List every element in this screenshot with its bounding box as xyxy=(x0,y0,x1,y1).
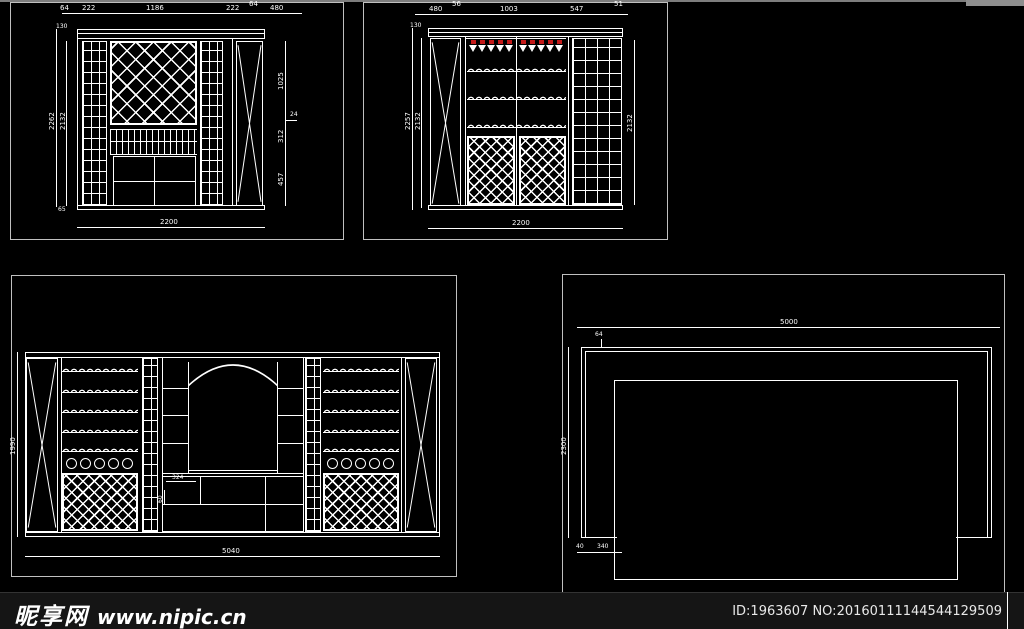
d1-bottom-dim-line xyxy=(77,227,265,228)
d4-wall-inner-left xyxy=(585,351,586,538)
d1-right-dim-leader xyxy=(285,120,297,121)
wine-glass-icon xyxy=(546,40,555,56)
wine-bottle-end-icon xyxy=(108,458,119,469)
d2-glass-rail xyxy=(466,38,566,39)
d1-bottle-slot-band xyxy=(110,129,197,155)
wine-glass-icon xyxy=(537,40,546,56)
d3-bottle-shelf xyxy=(323,366,399,372)
d2-crown-rail-inner-line xyxy=(429,32,622,33)
d1-left-stile xyxy=(77,39,78,206)
d2-bottle-shelf xyxy=(467,122,566,128)
d2-top-dim-line xyxy=(415,14,628,15)
d4-dim: 340 xyxy=(597,544,608,550)
d1-left-bottle-rack xyxy=(82,41,107,206)
d2-dim: 547 xyxy=(570,6,583,13)
d3-dim: 5040 xyxy=(222,548,240,555)
d4-left-dim-line xyxy=(568,347,569,538)
d1-cabinet-divider-v xyxy=(154,157,155,205)
d3-dim: 1990 xyxy=(10,437,17,455)
d2-dim: 2200 xyxy=(512,220,530,227)
d2-dim: 480 xyxy=(429,6,442,13)
d3-counter-line xyxy=(162,473,304,474)
arch-icon xyxy=(188,356,278,388)
window-top-corner xyxy=(966,0,1024,6)
d1-left-dim-line-outer xyxy=(56,29,57,207)
d2-mid-right-stile xyxy=(568,37,569,208)
d3-slot-column-left xyxy=(142,358,158,532)
d3-base-line-lower xyxy=(25,536,440,537)
d1-dim: 65 xyxy=(58,207,66,213)
d1-dim: 2200 xyxy=(160,219,178,226)
site-brand: 昵享网www.nipic.cn xyxy=(14,597,247,629)
d4-top-dim-line xyxy=(577,327,1000,328)
d2-right-bottle-rack xyxy=(572,38,622,205)
d3-niche-sill xyxy=(188,470,278,471)
d2-bottom-dim-line xyxy=(428,228,623,229)
d4-wall-step-right xyxy=(956,537,992,538)
d1-x-side-panel xyxy=(236,41,263,206)
d1-dim: 130 xyxy=(56,24,67,30)
d1-dim: 1186 xyxy=(146,5,164,12)
wine-bottle-end-icon xyxy=(369,458,380,469)
d3-bottle-shelf xyxy=(62,446,138,452)
d1-dim: 1025 xyxy=(278,72,285,90)
d3-bottle-shelf xyxy=(323,427,399,433)
d1-slot-band-mid-line xyxy=(110,141,197,142)
d1-right-dim-line xyxy=(285,41,286,206)
d4-bottom-dim-line xyxy=(577,552,622,553)
d4-dim: 2300 xyxy=(561,437,568,455)
d3-right-column-shelf xyxy=(278,415,303,416)
d4-wall-inner-top xyxy=(585,351,988,352)
wine-glass-icon xyxy=(487,40,496,56)
d1-right-stile xyxy=(232,39,233,206)
wine-bottle-end-icon xyxy=(66,458,77,469)
d1-dim: 222 xyxy=(82,5,95,12)
d1-crown-rail xyxy=(77,29,265,39)
d3-cabinet-divider-v2 xyxy=(265,477,266,504)
d2-bottle-shelf xyxy=(467,66,566,72)
d3-counter-dim-line xyxy=(166,481,196,482)
d2-dim: 2132 xyxy=(415,112,422,130)
wine-glass-icon xyxy=(528,40,537,56)
d2-dim: 56 xyxy=(452,1,461,8)
wine-bottle-end-icon xyxy=(341,458,352,469)
wine-bottle-end-icon xyxy=(94,458,105,469)
d3-cabinet-divider-v3 xyxy=(265,505,266,532)
d2-base-plinth xyxy=(428,205,623,210)
d1-dim: 312 xyxy=(278,130,285,143)
d3-bottle-shelf xyxy=(62,387,138,393)
d2-diamond-lattice-right xyxy=(519,136,566,205)
d1-top-dim-line xyxy=(62,13,302,14)
d4-wall-outer-left xyxy=(581,347,582,538)
d3-dim: 60 xyxy=(158,495,164,503)
d3-base-line-upper xyxy=(25,532,440,533)
d2-left-dim-line-outer xyxy=(412,28,413,210)
d2-dim: 2257 xyxy=(405,112,412,130)
wine-bottle-end-icon xyxy=(383,458,394,469)
d1-dim: 64 xyxy=(249,1,258,8)
d1-diamond-lattice-panel xyxy=(110,41,197,125)
d3-slot-column-right xyxy=(305,358,321,532)
d3-x-panel-left xyxy=(26,358,58,532)
d3-dim: 324 xyxy=(172,475,183,481)
d1-right-bottle-rack xyxy=(200,41,223,206)
d4-wall-inner-right xyxy=(987,351,988,538)
d3-left-column-shelf xyxy=(163,388,188,389)
x-brace-icon xyxy=(27,359,57,531)
wine-glass-icon xyxy=(505,40,514,56)
d1-dim: 457 xyxy=(278,173,285,186)
d3-bottle-shelf xyxy=(62,366,138,372)
d4-wall-step-left xyxy=(581,537,617,538)
d3-bottom-dim-line xyxy=(25,556,440,557)
footer-divider-line xyxy=(1007,592,1008,629)
d3-x-panel-right xyxy=(405,358,437,532)
d3-counter-dim-line-v xyxy=(164,490,165,505)
d3-left-column-shelf xyxy=(163,415,188,416)
wine-bottle-end-icon xyxy=(327,458,338,469)
d2-x-side-panel xyxy=(430,38,461,208)
d2-dim: 2132 xyxy=(627,114,634,132)
wine-glass-icon xyxy=(478,40,487,56)
d3-left-column-shelf xyxy=(163,443,188,444)
wine-bottle-end-icon xyxy=(122,458,133,469)
wine-bottle-end-icon xyxy=(80,458,91,469)
d3-cabinet-divider-v1 xyxy=(200,477,201,504)
d3-left-dim-line xyxy=(17,352,18,537)
watermark-footer: 昵享网www.nipic.cn ID:1963607 NO:2016011114… xyxy=(0,592,1024,629)
d3-right-section-stile xyxy=(401,358,402,532)
d2-dim: 130 xyxy=(410,23,421,29)
d3-right-column-shelf xyxy=(278,388,303,389)
x-brace-icon xyxy=(431,39,460,207)
d4-dim: 64 xyxy=(595,332,603,338)
d2-bottle-shelf xyxy=(467,94,566,100)
wine-glass-icon xyxy=(496,40,505,56)
d1-dim: 2262 xyxy=(49,112,56,130)
wine-bottle-end-icon xyxy=(355,458,366,469)
d1-dim: 2132 xyxy=(60,112,67,130)
d1-crown-rail-inner-line xyxy=(78,33,264,34)
wine-glass-icon xyxy=(519,40,528,56)
d3-bottle-shelf xyxy=(323,407,399,413)
d3-bottle-shelf xyxy=(323,446,399,452)
wine-glass-icon xyxy=(555,40,564,56)
d3-right-column-shelf xyxy=(278,443,303,444)
d4-dim: 40 xyxy=(576,544,584,550)
wine-glass-icon xyxy=(469,40,478,56)
d1-dim: 222 xyxy=(226,5,239,12)
d3-bottle-shelf xyxy=(62,407,138,413)
d1-dim: 64 xyxy=(60,5,69,12)
x-brace-icon xyxy=(406,359,436,531)
d3-right-edge xyxy=(439,358,440,537)
d3-bottle-shelf xyxy=(323,387,399,393)
d2-dim: 1003 xyxy=(500,6,518,13)
d4-counter-outline xyxy=(614,380,958,580)
site-url: www.nipic.cn xyxy=(97,605,247,629)
d4-dim: 5000 xyxy=(780,319,798,326)
d3-diamond-lattice-left xyxy=(62,473,138,531)
x-brace-icon xyxy=(237,42,262,205)
d4-wall-outer-top xyxy=(581,347,992,348)
d1-dim: 24 xyxy=(290,112,298,118)
site-name: 昵享网 xyxy=(14,604,89,629)
d2-dim: 51 xyxy=(614,1,623,8)
d2-right-dim-line xyxy=(634,40,635,205)
d1-dim: 480 xyxy=(270,5,283,12)
d2-diamond-lattice-left xyxy=(467,136,515,205)
image-id-text: ID:1963607 NO:20160111144544129509 xyxy=(732,604,1002,619)
d3-bottle-shelf xyxy=(62,427,138,433)
d2-mid-left-stile xyxy=(465,37,466,208)
d4-wall-outer-right xyxy=(991,347,992,538)
d3-diamond-lattice-right xyxy=(323,473,399,531)
cad-canvas: 64 222 1186 222 64 480 2262 2132 130 65 … xyxy=(0,0,1024,629)
d3-cabinet-divider-h xyxy=(163,504,303,505)
